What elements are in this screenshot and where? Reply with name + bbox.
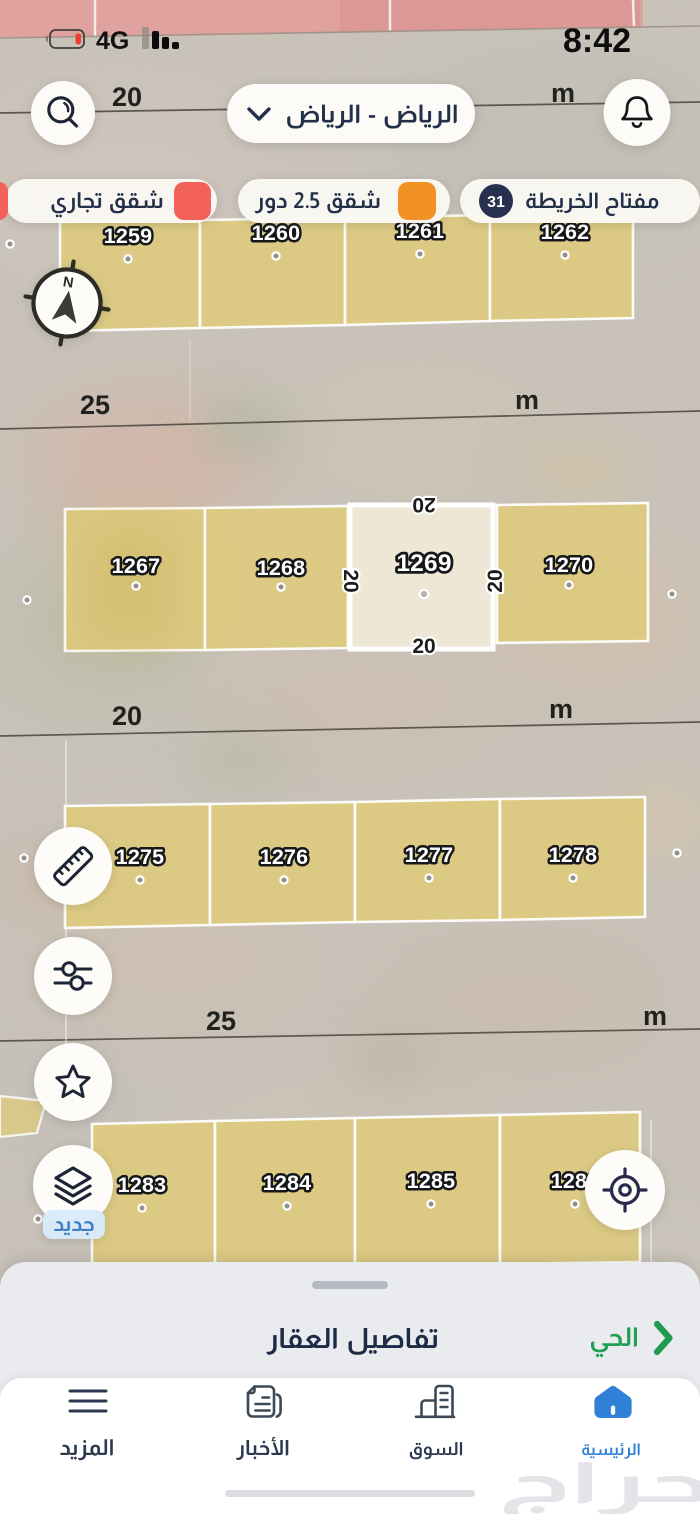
svg-text:m: m: [551, 78, 575, 108]
svg-text:8:42: 8:42: [563, 22, 631, 60]
svg-text:1276: 1276: [260, 845, 309, 869]
svg-text:1267: 1267: [112, 554, 161, 578]
svg-text:m: m: [549, 694, 573, 724]
svg-text:1277: 1277: [405, 843, 454, 867]
svg-text:25: 25: [80, 390, 110, 420]
svg-text:1275: 1275: [116, 845, 165, 869]
svg-text:4G: 4G: [96, 27, 129, 55]
svg-text:1268: 1268: [257, 556, 306, 580]
svg-text:20: 20: [112, 701, 142, 731]
svg-text:20: 20: [412, 493, 435, 516]
svg-text:25: 25: [206, 1006, 236, 1036]
svg-text:m: m: [515, 385, 539, 415]
svg-text:20: 20: [484, 569, 507, 592]
svg-text:1285: 1285: [407, 1169, 456, 1193]
svg-text:1278: 1278: [549, 843, 598, 867]
svg-text:20: 20: [112, 82, 142, 112]
svg-text:1269: 1269: [396, 550, 451, 577]
svg-text:31: 31: [487, 194, 505, 211]
svg-text:1283: 1283: [118, 1173, 167, 1197]
svg-text:1284: 1284: [263, 1171, 312, 1195]
svg-text:1270: 1270: [545, 553, 594, 577]
svg-text:20: 20: [412, 635, 435, 658]
svg-text:1259: 1259: [104, 224, 153, 248]
svg-text:20: 20: [339, 569, 362, 592]
svg-text:m: m: [643, 1001, 667, 1031]
